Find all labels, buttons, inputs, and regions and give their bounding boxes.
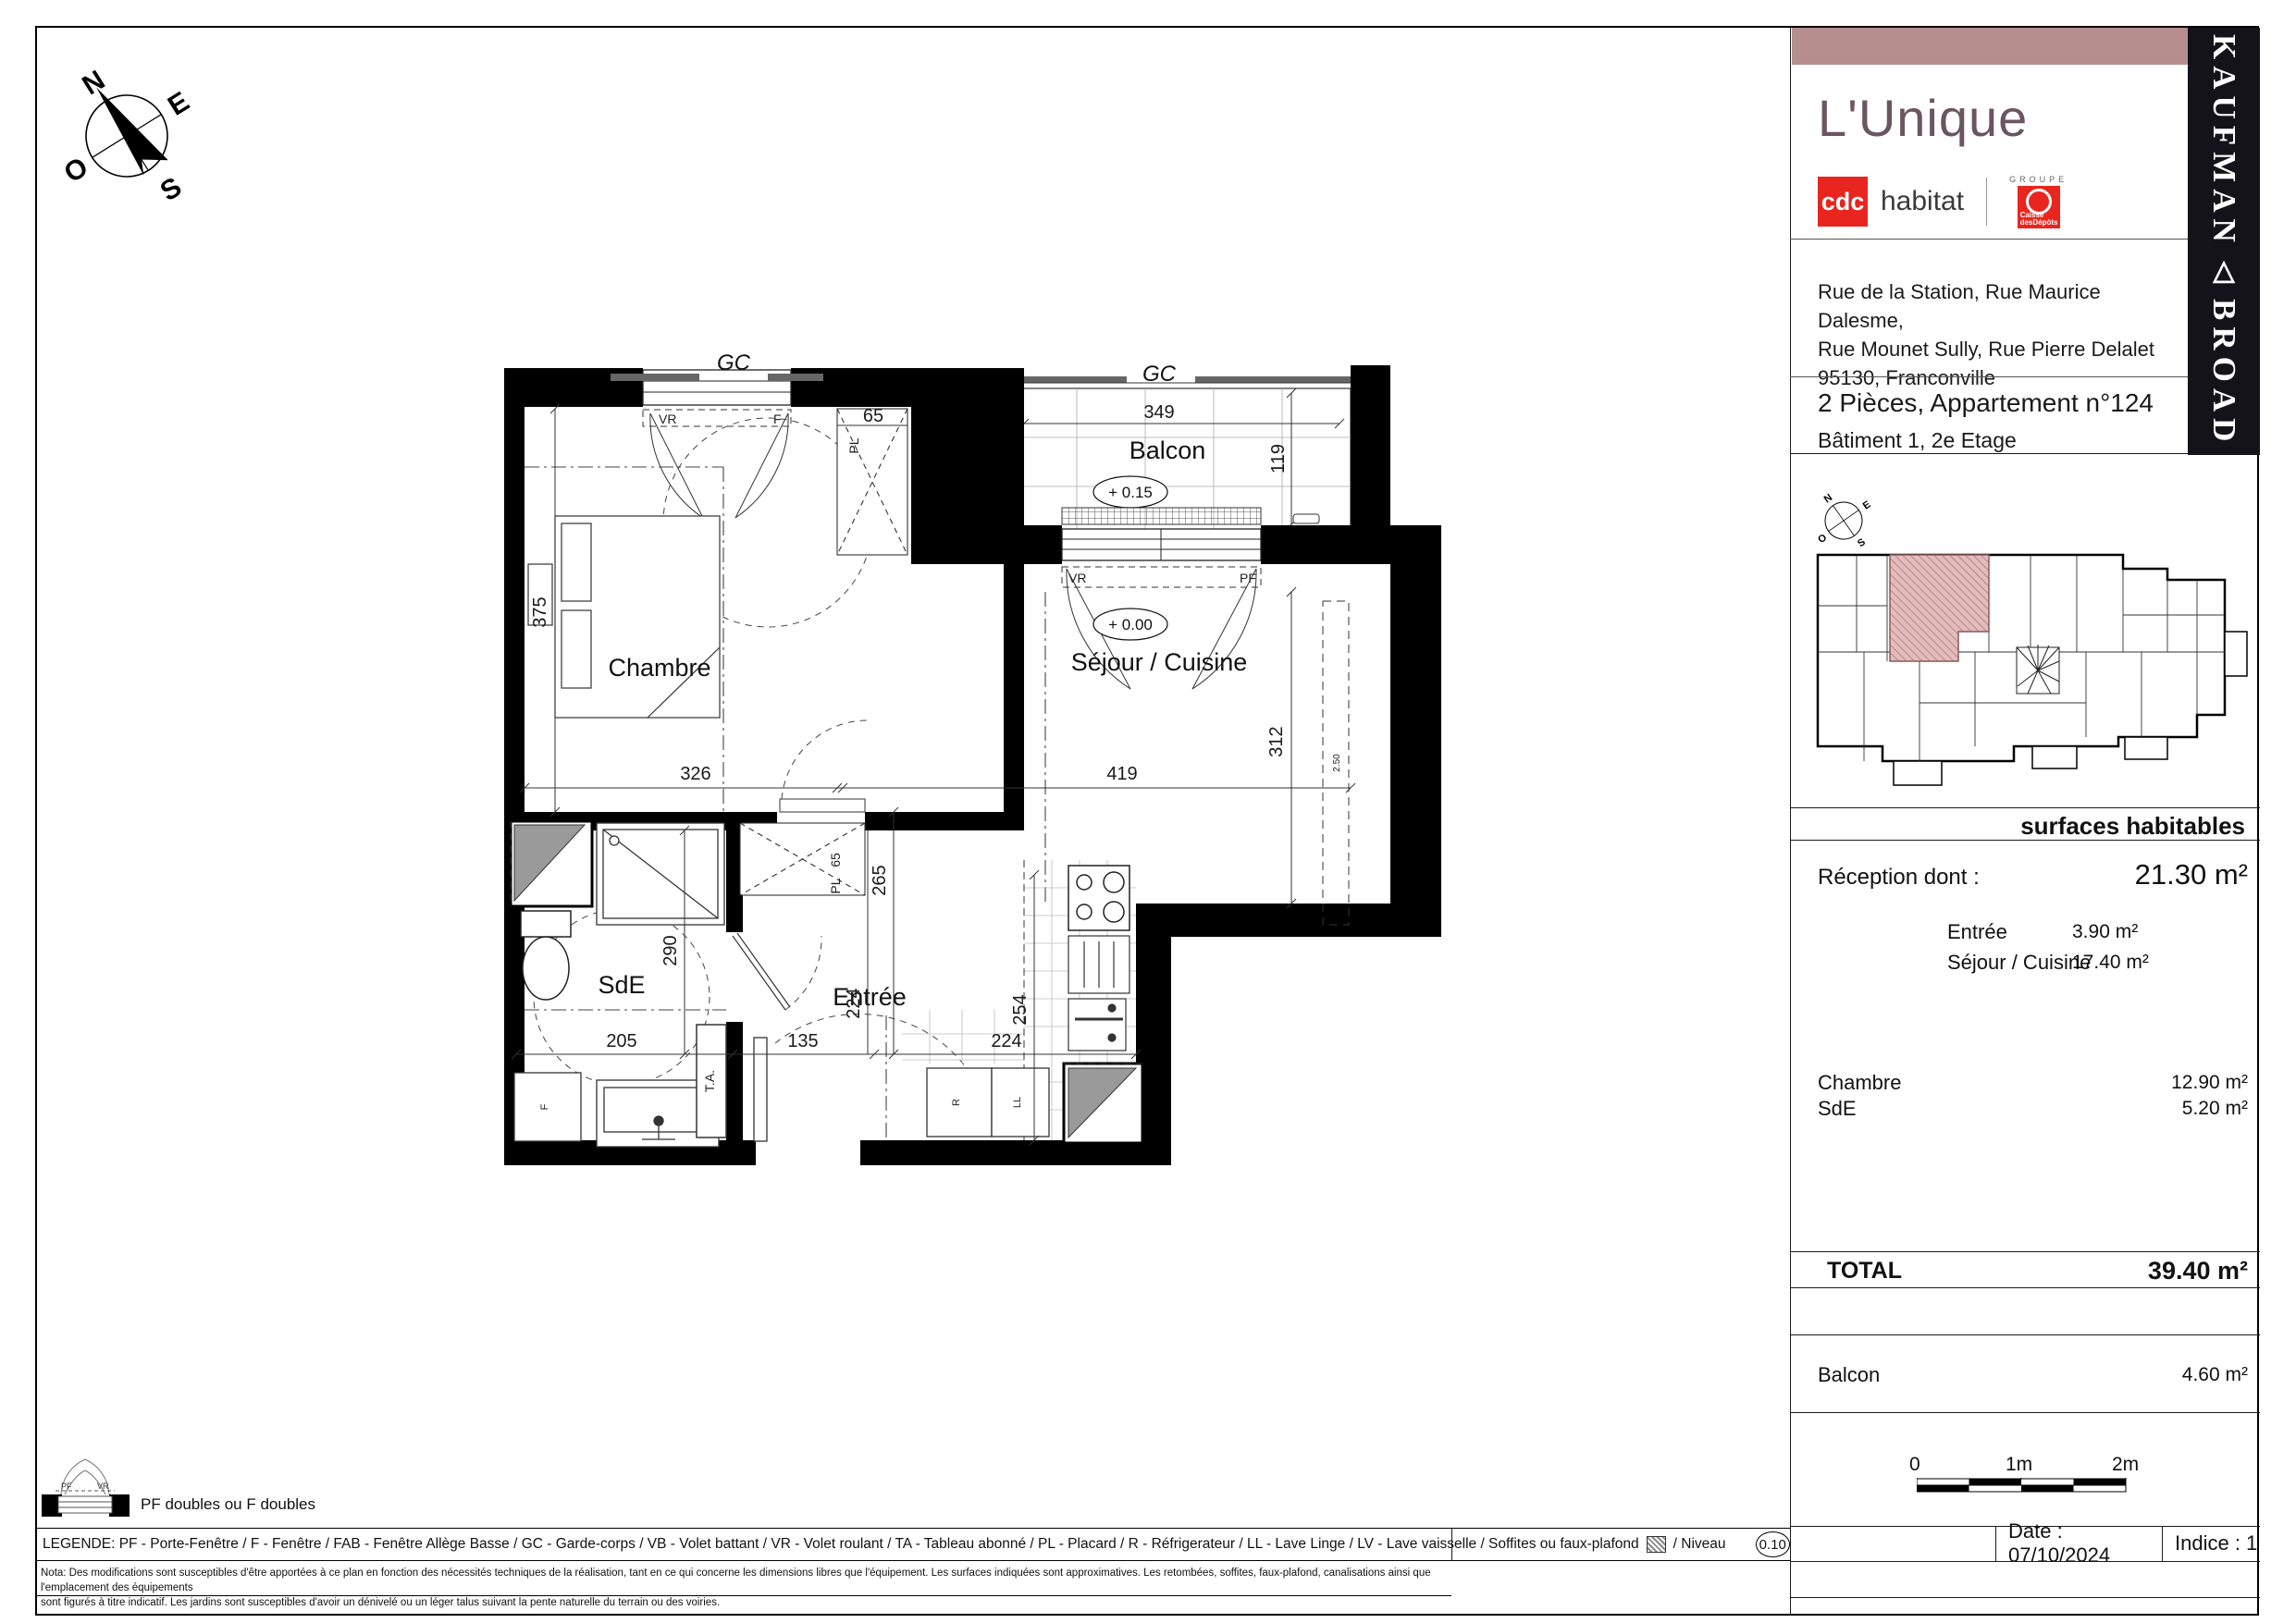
legend-band: LEGENDE: PF - Porte-Fenêtre / F - Fenêtr… bbox=[35, 1528, 1790, 1561]
divider bbox=[1790, 1597, 2260, 1598]
minimap-s: S bbox=[1856, 536, 1868, 549]
divider bbox=[1790, 239, 2188, 240]
minimap-compass: N E S O bbox=[1799, 476, 1889, 567]
niveau-value: 0.10 bbox=[1759, 1537, 1786, 1553]
legend-text: LEGENDE: PF - Porte-Fenêtre / F - Fenêtr… bbox=[43, 1536, 1639, 1553]
caisse-line2: desDépôts bbox=[2020, 218, 2058, 227]
cdc-logo-icon: cdc bbox=[1818, 177, 1868, 227]
divider bbox=[1790, 1412, 2260, 1413]
nota-line-1: Nota: Des modifications sont susceptible… bbox=[41, 1566, 1446, 1595]
balcon-row-label: Balcon bbox=[1818, 1363, 1880, 1387]
habitat-logo-text: habitat bbox=[1881, 186, 1964, 217]
surface-row-value: 5.20 m² bbox=[2072, 1098, 2248, 1120]
divider bbox=[1790, 453, 2260, 454]
surface-row-value: 3.90 m² bbox=[2072, 921, 2138, 943]
total-label: TOTAL bbox=[1827, 1258, 1902, 1285]
scale-2m: 2m bbox=[2112, 1454, 2139, 1476]
scale-1m: 1m bbox=[2006, 1454, 2032, 1476]
divider bbox=[1790, 1251, 2260, 1252]
address-line-1: Rue de la Station, Rue Maurice Dalesme, bbox=[1818, 277, 2188, 335]
caisse-label: Caisse desDépôts bbox=[2020, 212, 2058, 227]
divider bbox=[1790, 807, 2260, 808]
kaufman-broad-banner: KAUFMAN △ BROAD bbox=[2188, 28, 2260, 455]
brand-logos: cdc habitat GROUPE Caisse desDépôts bbox=[1818, 176, 2068, 227]
divider bbox=[1790, 1561, 2260, 1562]
minimap-e: E bbox=[1861, 499, 1873, 512]
reception-label: Réception dont : bbox=[1818, 865, 1980, 891]
divider bbox=[1790, 1287, 2260, 1288]
minimap-stairs-icon bbox=[2017, 645, 2059, 694]
divider bbox=[1790, 840, 2260, 841]
address-line-2: Rue Mounet Sully, Rue Pierre Delalet bbox=[1818, 335, 2188, 363]
balcon-row-value: 4.60 m² bbox=[2072, 1364, 2248, 1386]
kaufman-text: KAUFMAN bbox=[2205, 34, 2242, 249]
caisse-depots-icon: Caisse desDépôts bbox=[2018, 186, 2060, 228]
site-plan-minimap: N E S O bbox=[1799, 467, 2253, 800]
legend-niveau-label: / Niveau bbox=[1673, 1536, 1726, 1553]
minimap-o: O bbox=[1816, 532, 1829, 546]
nota-band: Nota: Des modifications sont susceptible… bbox=[35, 1564, 1451, 1596]
divider bbox=[1790, 376, 2188, 377]
plan-sheet: N E S O GC 349 Balcon bbox=[0, 0, 2296, 1623]
scale-bar bbox=[1917, 1478, 2129, 1494]
divider bbox=[1790, 1334, 2260, 1335]
surfaces-header: surfaces habitables bbox=[1795, 812, 2253, 841]
groupe-caisse-logo: GROUPE Caisse desDépôts bbox=[2009, 175, 2068, 228]
soffit-swatch-icon bbox=[1647, 1536, 1666, 1553]
apartment-title: 2 Pièces, Appartement n°124 bbox=[1818, 388, 2154, 418]
broad-text: BROAD bbox=[2205, 299, 2242, 448]
surface-row-label: Entrée bbox=[1947, 920, 2007, 944]
surface-row-value: 12.90 m² bbox=[2072, 1072, 2248, 1094]
kaufman-triangle-icon: △ bbox=[2208, 249, 2240, 299]
project-title: L'Unique bbox=[1818, 88, 2188, 148]
reception-value: 21.30 m² bbox=[2072, 858, 2248, 891]
panel-divider bbox=[1790, 26, 1791, 1616]
surface-row-label: Séjour / Cuisine bbox=[1947, 951, 2091, 975]
apartment-floor: Bâtiment 1, 2e Etage bbox=[1818, 428, 2017, 453]
divider bbox=[1451, 1528, 1452, 1561]
nota-line-2: sont figurés à titre indicatif. Les jard… bbox=[41, 1595, 1446, 1610]
surface-row-value: 17.40 m² bbox=[2072, 952, 2149, 974]
total-value: 39.40 m² bbox=[2063, 1257, 2248, 1285]
scale-0: 0 bbox=[1909, 1454, 1920, 1476]
date-cell: Date : 07/10/2024 bbox=[1995, 1526, 2162, 1561]
niveau-ellipse: 0.10 bbox=[1756, 1531, 1790, 1557]
surface-row-label: SdE bbox=[1818, 1097, 1857, 1121]
indice-cell: Indice : 1 bbox=[2162, 1526, 2260, 1561]
header-rose-bar bbox=[1792, 28, 2188, 65]
address-block: Rue de la Station, Rue Maurice Dalesme, … bbox=[1818, 277, 2188, 392]
groupe-label: GROUPE bbox=[2009, 175, 2068, 184]
minimap-n: N bbox=[1822, 492, 1834, 505]
logo-divider bbox=[1986, 178, 1987, 226]
surface-row-label: Chambre bbox=[1818, 1071, 1901, 1095]
cdc-logo-text: cdc bbox=[1821, 188, 1865, 216]
